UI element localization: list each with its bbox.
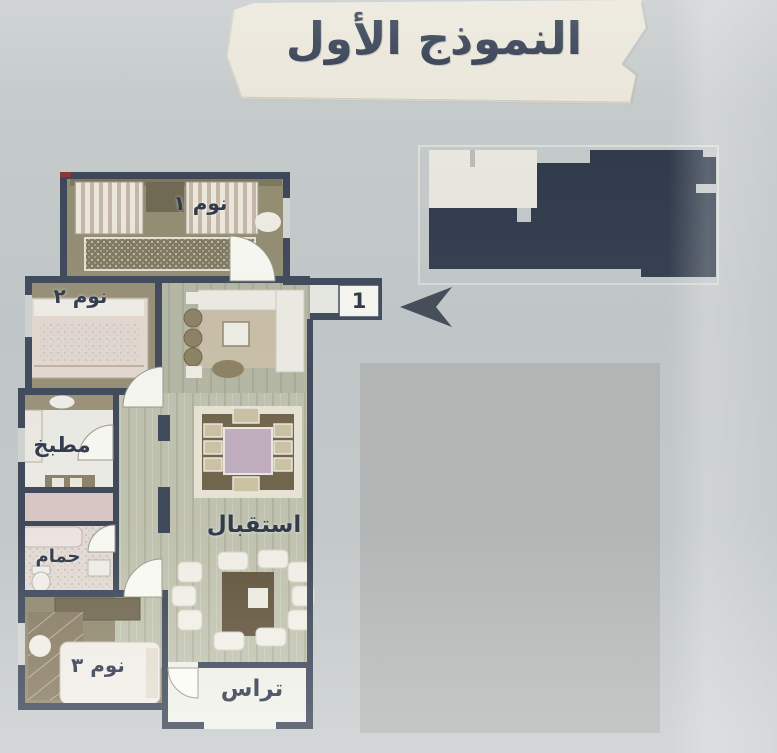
room-label-reception: استقبال (198, 513, 310, 538)
room-label-bedroom3: نوم ٣ (48, 654, 148, 676)
scanned-floorplan-page: النموذج الأول نوم ١ نوم ٢ مطبخ حمام نوم … (0, 0, 777, 753)
building-key-plan (419, 146, 718, 284)
key-plan-unit-highlight (429, 150, 537, 208)
entrance-number-badge: 1 (340, 286, 378, 316)
dressing-strip (18, 490, 118, 523)
page-title: النموذج الأول (238, 14, 630, 64)
red-mark (60, 172, 71, 177)
floorplan-graphic (0, 0, 777, 753)
room-label-bedroom1: نوم ١ (148, 192, 253, 214)
salon-furniture (184, 290, 304, 378)
room-label-bathroom: حمام (22, 547, 94, 567)
dining-set (194, 406, 302, 498)
bedroom2-furniture (30, 298, 148, 378)
left-arrowhead-icon (400, 287, 452, 327)
room-label-bedroom2: نوم ٢ (28, 285, 133, 307)
placeholder-box (360, 363, 660, 733)
room-label-kitchen: مطبخ (22, 434, 102, 457)
room-label-terrace: تراس (193, 677, 311, 702)
bedroom3-furniture (28, 598, 160, 704)
